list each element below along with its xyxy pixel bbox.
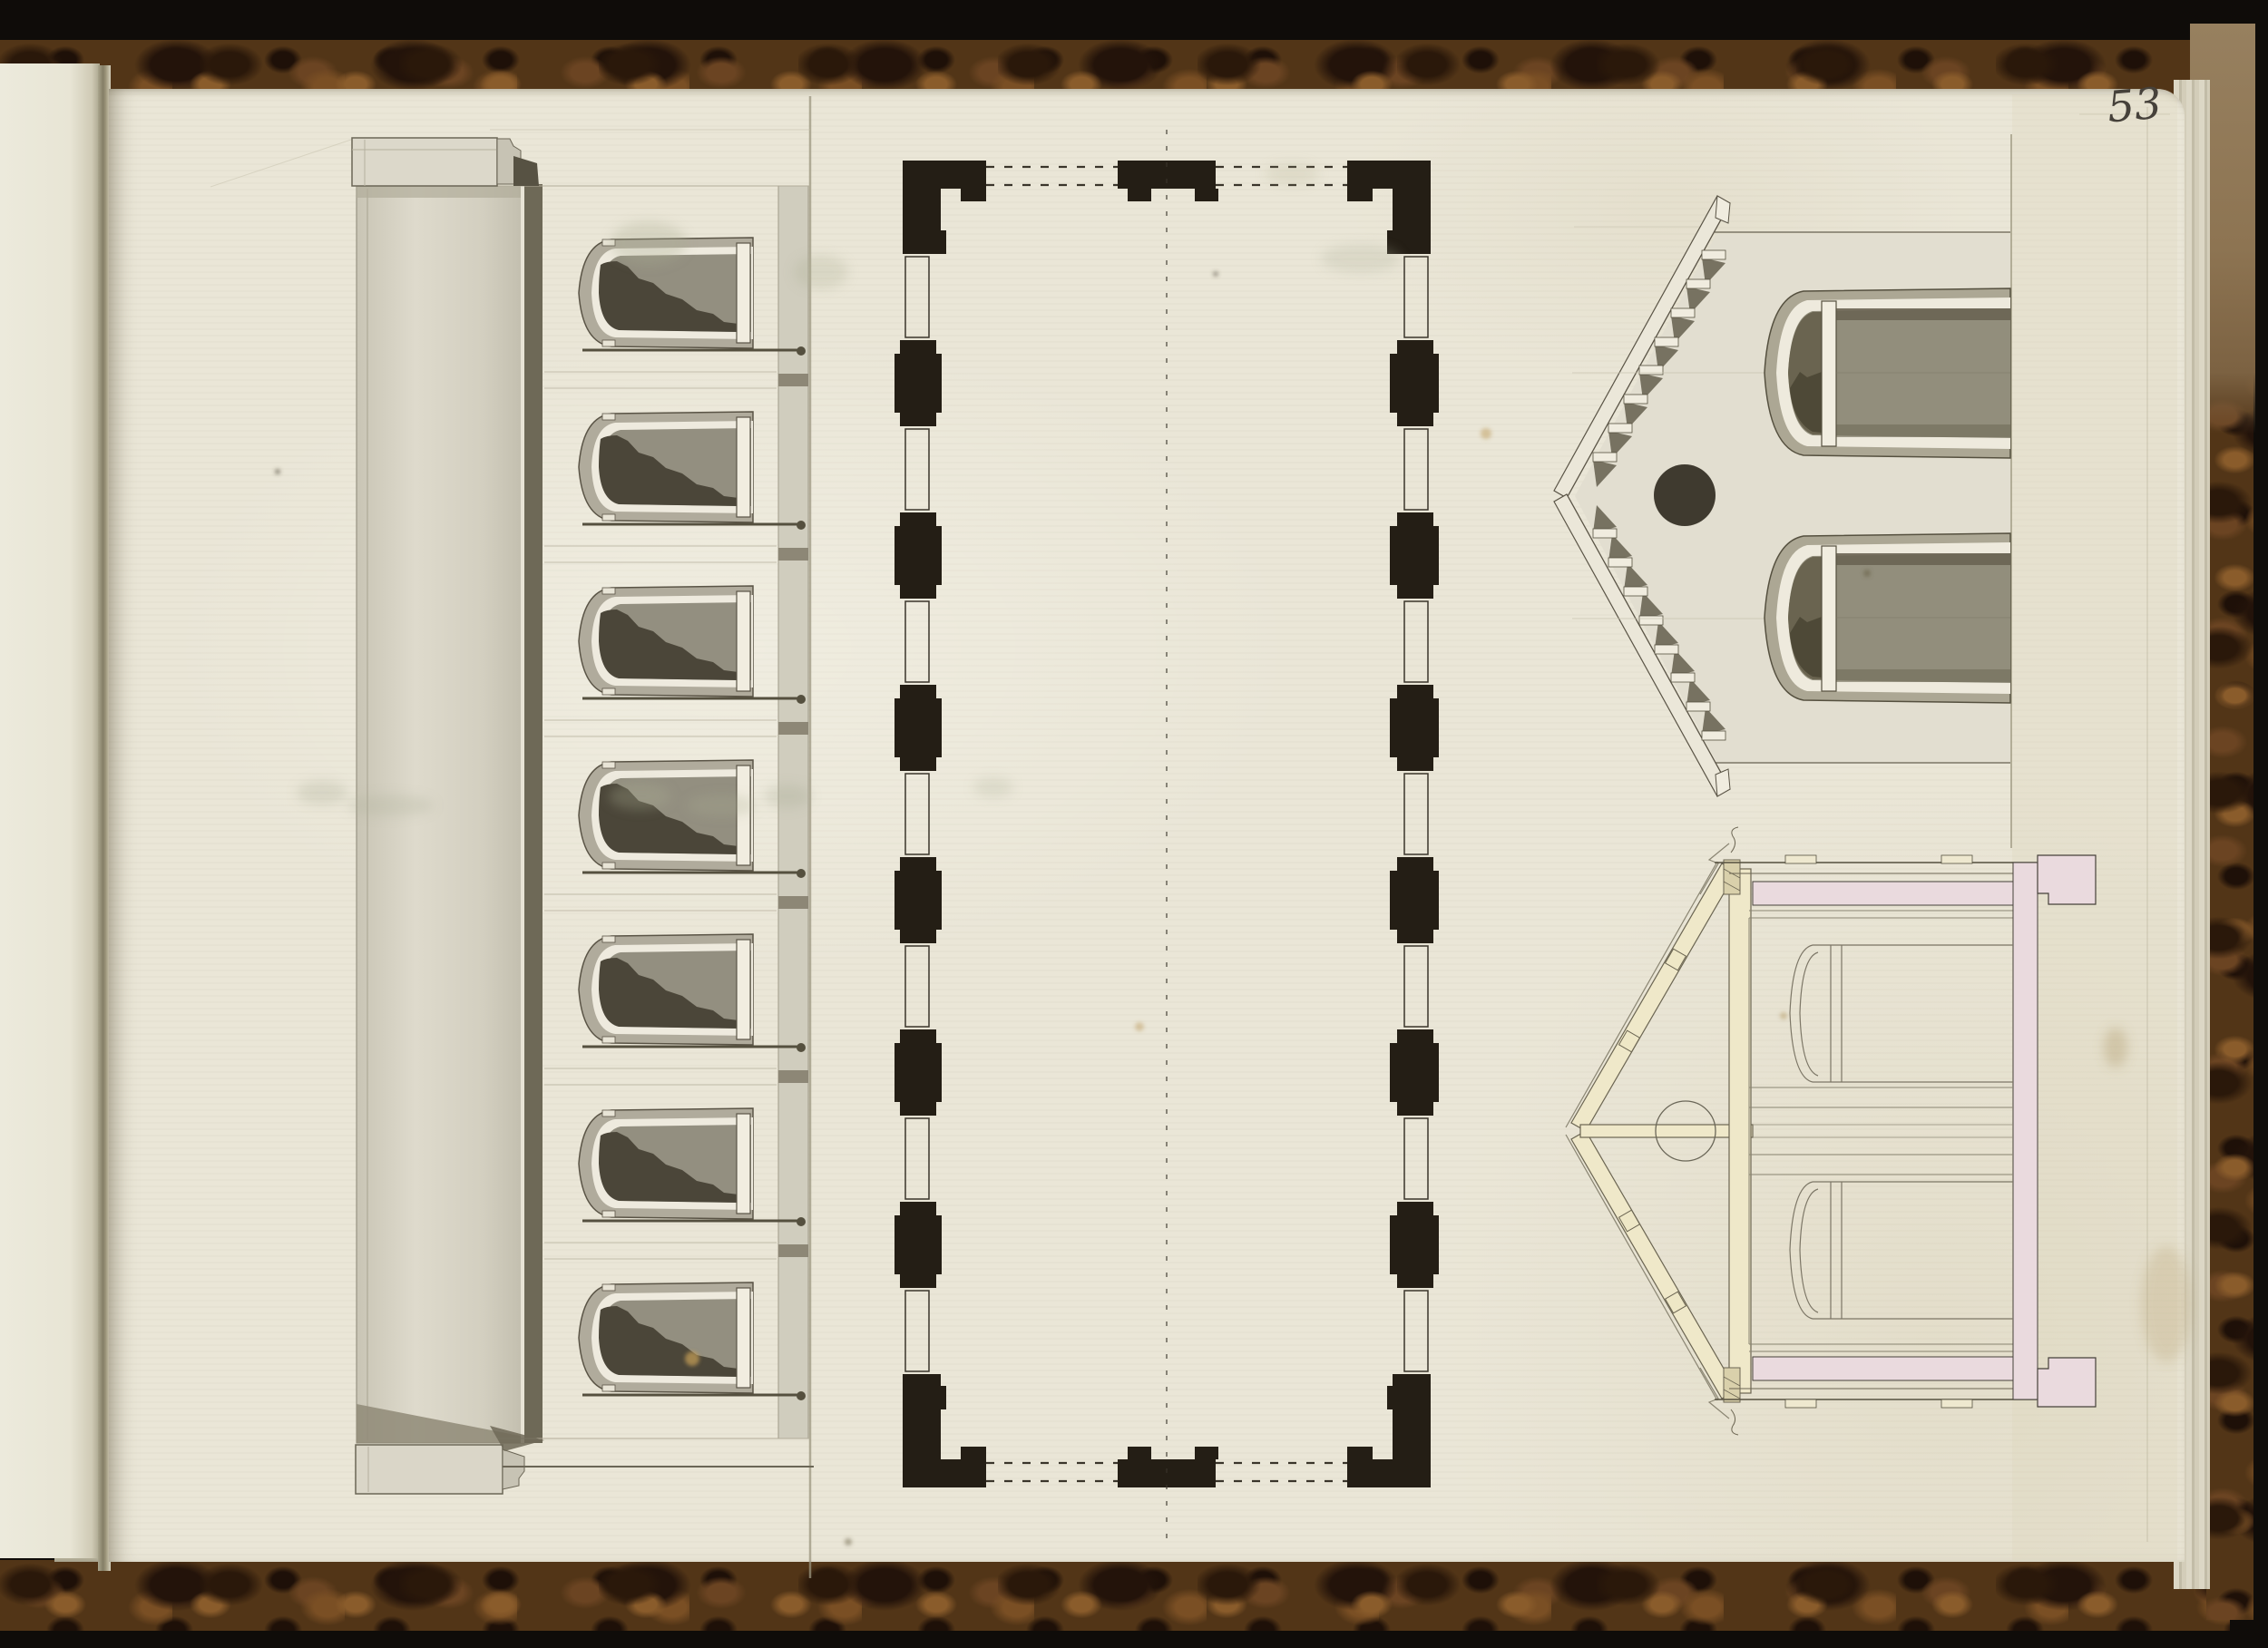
gable-end-elevation-drawing [1554,134,2011,848]
floor-plan-drawing [894,130,1439,1543]
wall-post [1729,869,1751,1393]
side-elevation-drawing [210,96,814,1578]
scanned-book-page: 53 [0,0,2268,1648]
cross-section-drawing [1566,827,2096,1435]
section-interior [1749,918,2013,1344]
eave-shadow-stripe [524,184,543,1443]
section-bottom-wall [1715,1344,2037,1408]
drawings-layer [0,0,2268,1648]
oculus [1654,464,1716,526]
plan-dashed-axes [986,130,1347,1543]
section-top-wall [1715,855,2037,918]
roof-truss [1571,827,1753,1435]
facade-windows [579,238,806,1400]
page-number: 53 [2100,73,2169,142]
tie-beam [1580,1125,1753,1137]
cornice-end-cap-top [352,138,539,186]
